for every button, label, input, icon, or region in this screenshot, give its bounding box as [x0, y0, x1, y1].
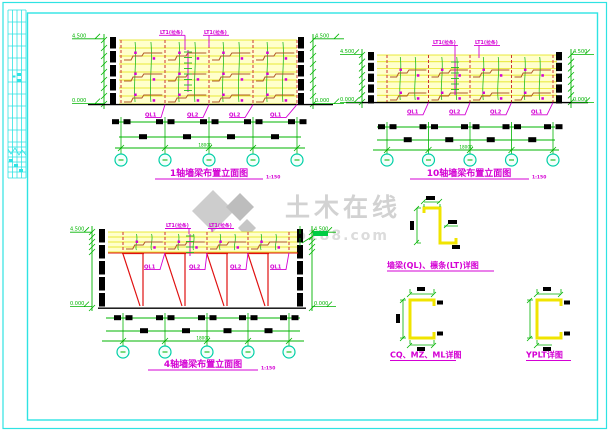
- level-label: 4.500: [70, 227, 84, 233]
- cad-sheet: 土木在线 co188.com: [0, 0, 610, 435]
- cad-viewer-canvas: 土木在线 co188.com: [0, 0, 610, 435]
- level-label: 0.000: [72, 98, 86, 104]
- title-block-strip: [8, 10, 26, 178]
- level-label: 0.000: [314, 301, 328, 307]
- beam-label: QL2: [189, 264, 201, 270]
- scale-label: 1:150: [266, 175, 280, 181]
- watermark-diamond-icon: [226, 193, 254, 221]
- watermark-brand-text: 土木在线: [285, 193, 401, 222]
- span-dimension: 18000: [198, 143, 212, 148]
- level-label: 0.000: [573, 97, 587, 103]
- elevation-10-title: 10轴墙梁布置立面图: [427, 167, 512, 179]
- elevation-4-title: 4轴墙梁布置立面图: [164, 358, 242, 370]
- beam-label: QL1: [144, 264, 156, 270]
- scale-label: 1:150: [261, 366, 275, 372]
- tie-rod-label: LT1(拉条): [166, 222, 189, 229]
- level-label: 4.500: [573, 49, 587, 55]
- level-label: 0.000: [315, 98, 329, 104]
- level-label: 0.000: [70, 301, 84, 307]
- scale-label: 1:150: [532, 175, 546, 181]
- beam-label: QL1: [531, 110, 543, 116]
- level-label: 4.500: [314, 227, 328, 233]
- detail-title-girt-purlin: 墙梁(QL)、檩条(LT)详图: [387, 260, 479, 270]
- beam-label: QL2: [229, 112, 241, 118]
- tie-rod-label: LT1(拉条): [160, 29, 183, 36]
- detail-title-cq-mz-ml: CQ、MZ、ML详图: [390, 350, 462, 360]
- tie-rod-label: LT1(拉条): [475, 39, 498, 46]
- tie-rod-label: LT1(拉条): [433, 39, 456, 46]
- elevation-1-title: 1轴墙梁布置立面图: [170, 167, 248, 179]
- z-section-profile: [424, 208, 456, 243]
- level-label: 4.500: [315, 33, 329, 39]
- tie-rod-label: LT1(拉条): [209, 222, 232, 229]
- span-dimension: 18000: [196, 336, 210, 341]
- beam-label: QL2: [490, 110, 502, 116]
- level-label: 4.500: [72, 33, 86, 39]
- level-label: 0.000: [340, 97, 354, 103]
- beam-label: QL1: [407, 110, 419, 116]
- beam-label: QL1: [270, 112, 282, 118]
- c-section-profile: [537, 300, 561, 338]
- section-details: [396, 196, 570, 351]
- c-section-profile: [410, 300, 434, 338]
- beam-label: QL1: [270, 264, 282, 270]
- span-dimension: 18000: [459, 145, 473, 150]
- detail-title-yplt: YPLT详图: [525, 350, 563, 360]
- beam-label: QL2: [187, 112, 199, 118]
- beam-label: QL2: [230, 264, 242, 270]
- tie-rod-label: LT1(拉条): [204, 29, 227, 36]
- beam-label: QL2: [449, 110, 461, 116]
- beam-label: QL1: [145, 112, 157, 118]
- level-label: 4.500: [340, 49, 354, 55]
